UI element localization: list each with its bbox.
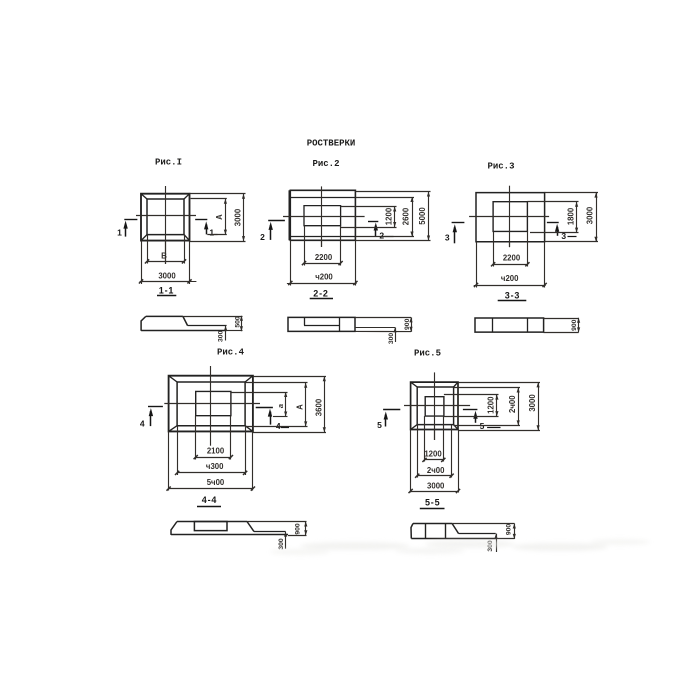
svg-text:2ч00: 2ч00 — [427, 466, 445, 475]
svg-text:1200: 1200 — [424, 450, 442, 459]
svg-text:3-3: 3-3 — [505, 291, 520, 301]
svg-text:1800: 1800 — [567, 207, 576, 225]
svg-text:300: 300 — [278, 538, 285, 550]
svg-text:Рис.4: Рис.4 — [217, 348, 245, 358]
svg-text:900: 900 — [295, 523, 302, 535]
svg-text:5000: 5000 — [418, 207, 427, 225]
svg-text:1: 1 — [209, 227, 214, 237]
svg-text:2: 2 — [260, 232, 265, 242]
svg-text:900: 900 — [404, 318, 411, 330]
svg-text:Рис.3: Рис.3 — [487, 162, 514, 172]
svg-text:2600: 2600 — [402, 207, 411, 225]
svg-text:1200: 1200 — [385, 207, 394, 225]
svg-text:5-5: 5-5 — [425, 497, 440, 507]
svg-text:4: 4 — [140, 418, 145, 428]
svg-text:1200: 1200 — [487, 396, 496, 414]
svg-text:2200: 2200 — [315, 253, 333, 262]
svg-text:Рис.2: Рис.2 — [312, 159, 339, 169]
svg-text:Рис.5: Рис.5 — [414, 349, 441, 359]
svg-text:900: 900 — [506, 524, 513, 536]
svg-text:500: 500 — [235, 316, 242, 328]
svg-text:3600: 3600 — [315, 398, 324, 416]
svg-text:300: 300 — [218, 330, 225, 342]
svg-text:4-4: 4-4 — [202, 495, 217, 505]
svg-text:3000: 3000 — [427, 481, 445, 490]
svg-text:Рис.I: Рис.I — [155, 158, 182, 168]
svg-text:2100: 2100 — [207, 447, 225, 456]
svg-text:3000: 3000 — [158, 272, 176, 281]
svg-text:a: a — [276, 404, 285, 408]
svg-text:2200: 2200 — [503, 254, 521, 263]
svg-text:ч200: ч200 — [315, 273, 333, 282]
svg-text:900: 900 — [571, 319, 578, 331]
svg-text:1: 1 — [117, 227, 122, 237]
svg-text:3000: 3000 — [528, 394, 537, 412]
svg-text:3: 3 — [445, 232, 450, 242]
svg-text:300: 300 — [388, 333, 395, 345]
svg-text:A: A — [296, 404, 305, 410]
svg-text:5ч00: 5ч00 — [207, 478, 225, 487]
svg-text:ч200: ч200 — [501, 274, 519, 283]
svg-text:1-1: 1-1 — [159, 286, 174, 296]
svg-text:РОСТВЕРКИ: РОСТВЕРКИ — [307, 139, 356, 149]
svg-text:3000: 3000 — [233, 208, 242, 226]
svg-text:A: A — [215, 214, 224, 220]
svg-text:B: B — [161, 251, 167, 260]
svg-text:3000: 3000 — [586, 206, 595, 224]
svg-text:2ч00: 2ч00 — [508, 395, 517, 413]
svg-text:2: 2 — [379, 230, 384, 240]
svg-text:2-2: 2-2 — [313, 289, 328, 299]
svg-text:ч300: ч300 — [206, 462, 224, 471]
svg-text:5: 5 — [377, 420, 382, 430]
